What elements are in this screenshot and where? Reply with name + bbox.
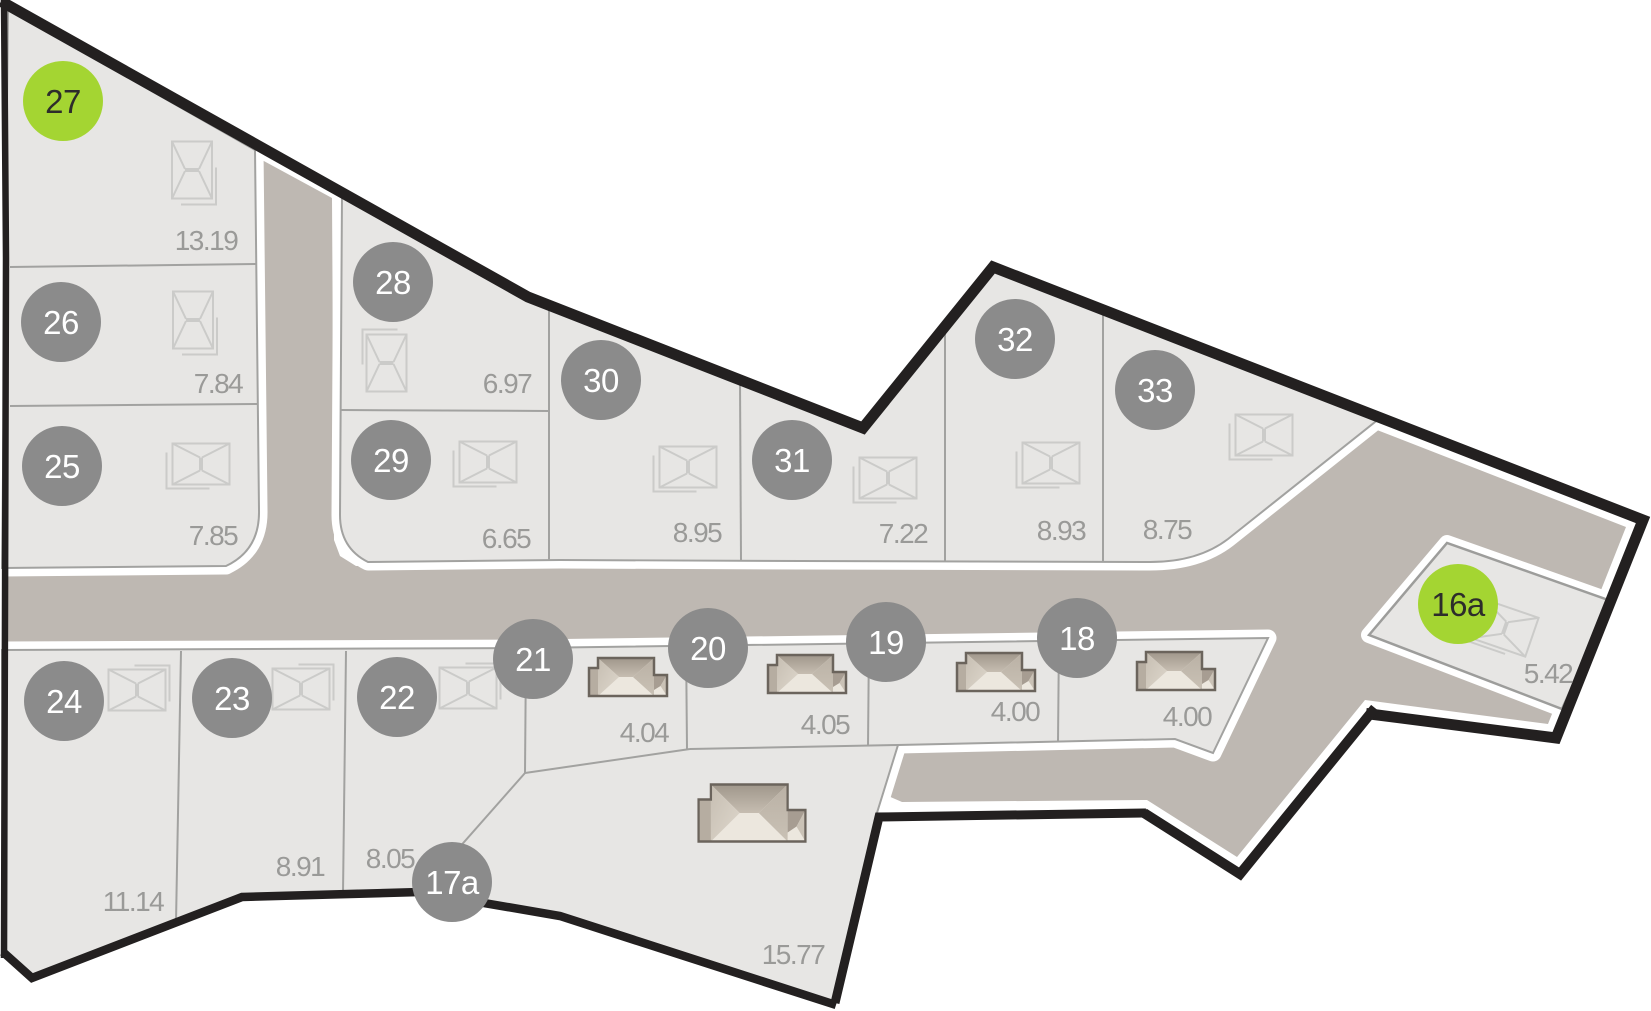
svg-text:26: 26 [43,304,79,341]
svg-text:8.05: 8.05 [366,843,415,874]
svg-text:4.00: 4.00 [991,696,1040,727]
svg-text:33: 33 [1137,372,1173,409]
svg-text:8.75: 8.75 [1143,514,1192,545]
svg-text:4.04: 4.04 [620,717,669,748]
svg-text:21: 21 [515,641,551,678]
svg-text:11.14: 11.14 [103,886,164,917]
svg-text:29: 29 [373,442,409,479]
svg-text:4.00: 4.00 [1163,701,1212,732]
svg-text:30: 30 [583,362,619,399]
svg-text:8.95: 8.95 [673,517,722,548]
svg-text:7.84: 7.84 [194,368,243,399]
svg-text:5.42: 5.42 [1524,658,1573,689]
svg-text:20: 20 [690,630,726,667]
svg-text:22: 22 [379,679,415,716]
svg-text:13.19: 13.19 [175,225,238,256]
svg-text:7.22: 7.22 [879,518,928,549]
svg-text:6.97: 6.97 [483,368,532,399]
svg-text:19: 19 [868,624,904,661]
svg-text:31: 31 [774,442,810,479]
svg-text:24: 24 [46,683,82,720]
svg-text:8.93: 8.93 [1037,515,1086,546]
svg-text:25: 25 [44,448,80,485]
svg-text:15.77: 15.77 [762,939,825,970]
svg-text:28: 28 [375,264,411,301]
svg-text:18: 18 [1059,620,1095,657]
svg-text:8.91: 8.91 [276,851,325,882]
svg-text:32: 32 [997,321,1033,358]
svg-text:7.85: 7.85 [189,520,238,551]
svg-text:16a: 16a [1431,586,1486,623]
svg-text:6.65: 6.65 [482,523,531,554]
svg-text:27: 27 [45,83,81,120]
svg-text:17a: 17a [425,864,480,901]
svg-text:23: 23 [214,680,250,717]
svg-text:4.05: 4.05 [801,709,850,740]
